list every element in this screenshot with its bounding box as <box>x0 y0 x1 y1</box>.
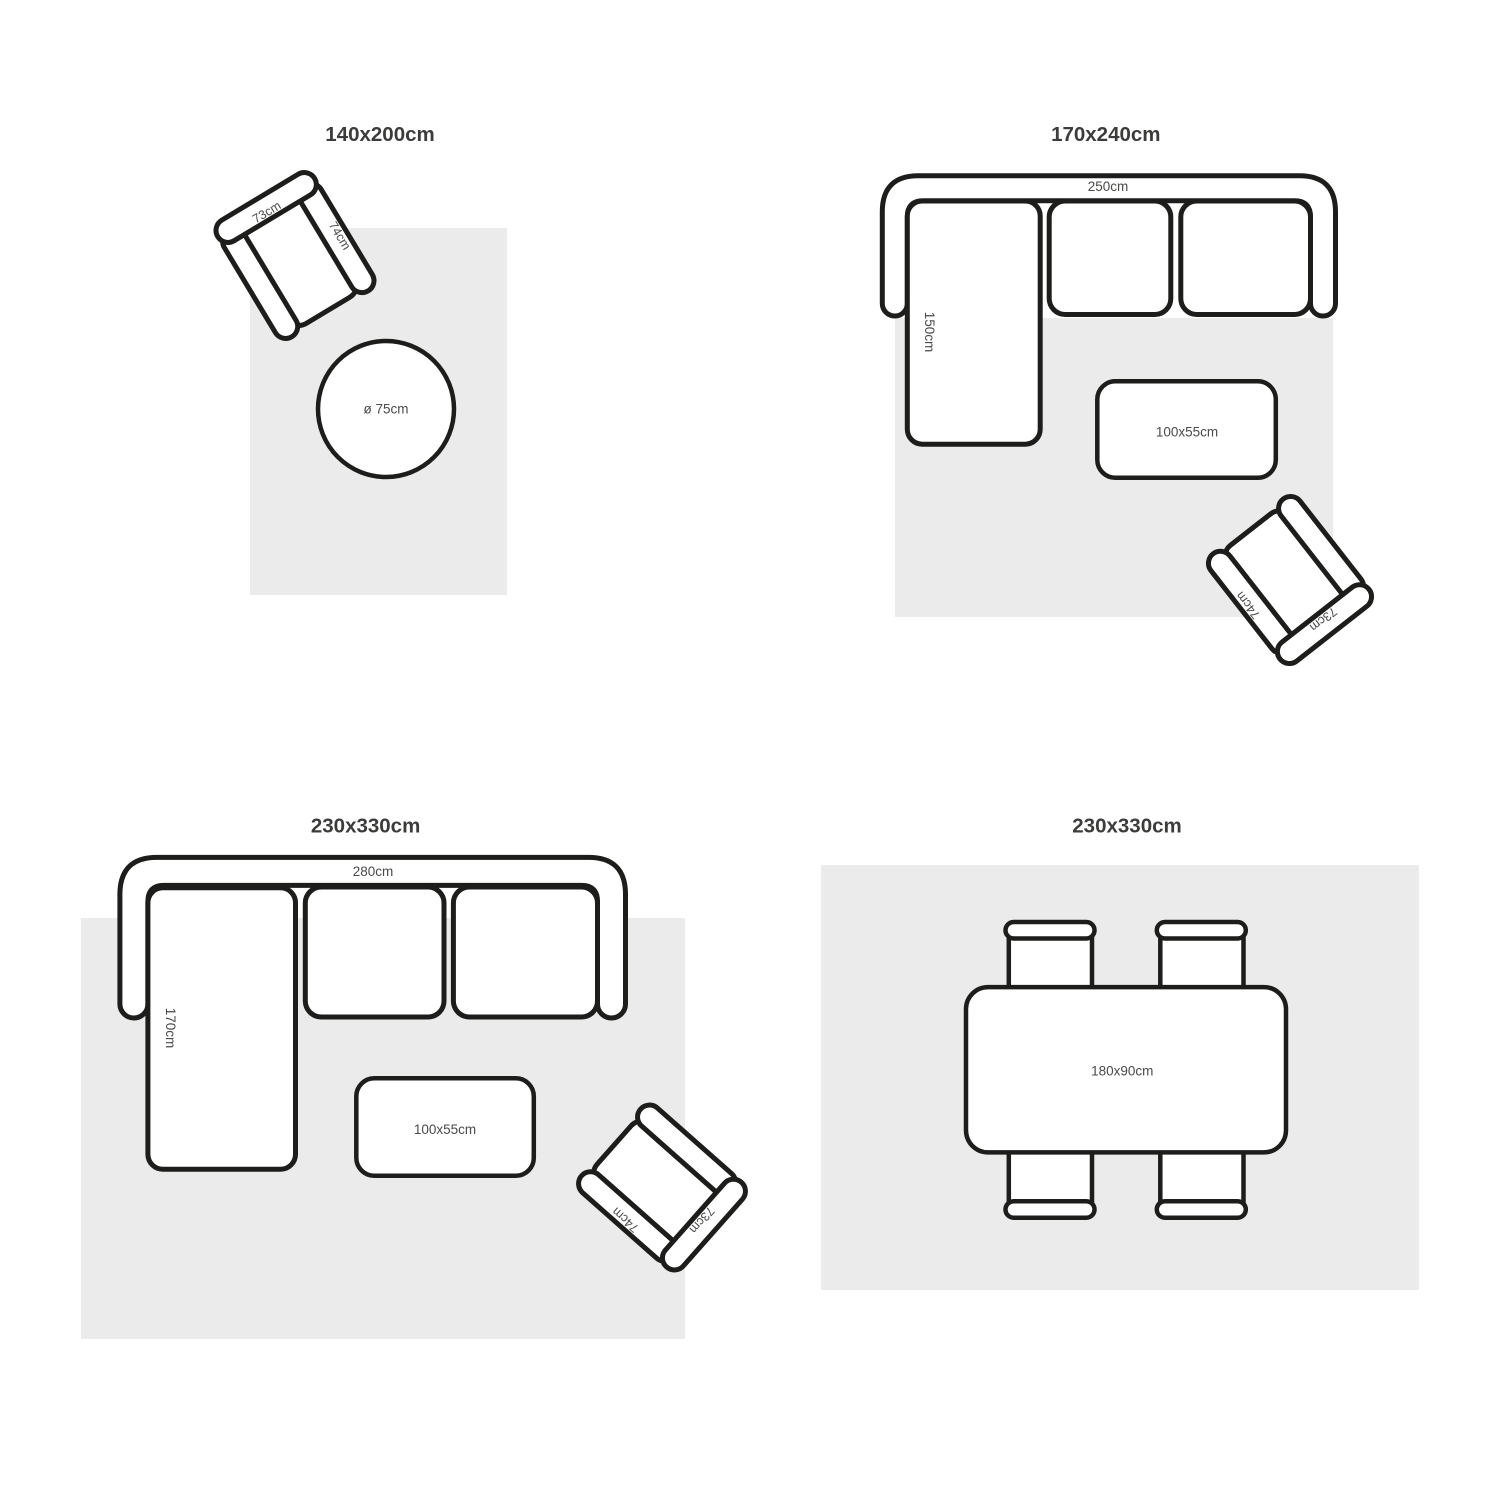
svg-text:180x90cm: 180x90cm <box>1091 1064 1153 1079</box>
svg-text:100x55cm: 100x55cm <box>414 1122 476 1137</box>
svg-text:170cm: 170cm <box>163 1008 178 1049</box>
svg-text:230x330cm: 230x330cm <box>311 814 420 837</box>
svg-text:230x330cm: 230x330cm <box>1072 814 1181 837</box>
svg-text:280cm: 280cm <box>353 864 394 879</box>
svg-text:140x200cm: 140x200cm <box>325 123 434 146</box>
svg-text:100x55cm: 100x55cm <box>1156 425 1218 440</box>
svg-text:150cm: 150cm <box>922 312 937 353</box>
svg-text:250cm: 250cm <box>1088 179 1129 194</box>
svg-text:170x240cm: 170x240cm <box>1051 123 1160 146</box>
svg-text:ø 75cm: ø 75cm <box>363 402 408 417</box>
